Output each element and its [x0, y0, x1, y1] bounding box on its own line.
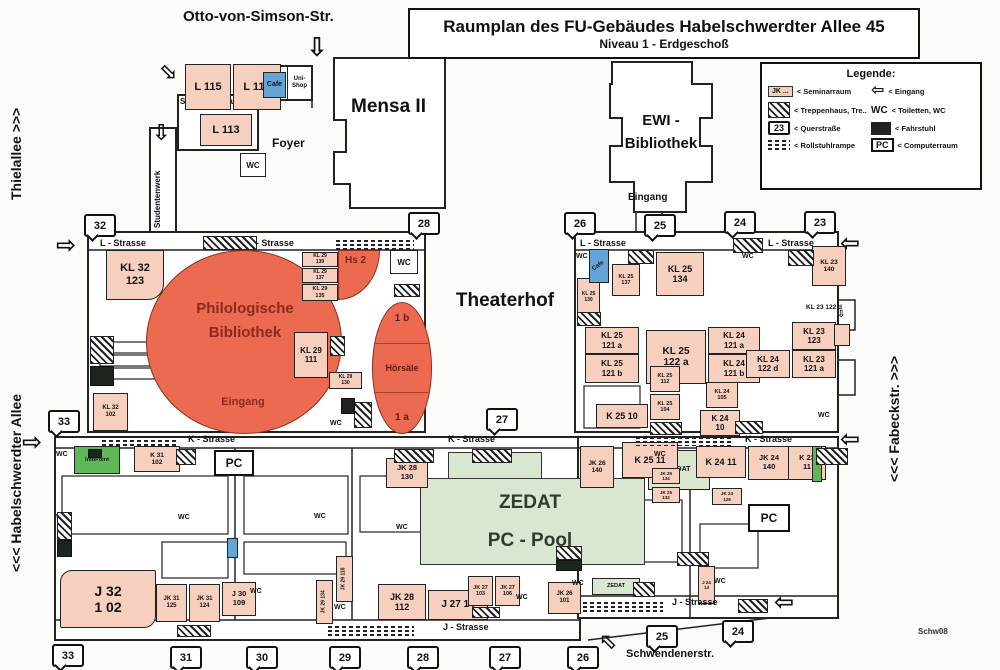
street-label-j-strasse: J - Strasse — [443, 622, 489, 632]
street-badge-24: 24 — [722, 620, 754, 643]
stairs — [57, 512, 72, 540]
stairs — [628, 250, 654, 264]
room-unlabeled — [834, 324, 850, 346]
elevator — [57, 540, 72, 557]
room-jk-26-140: JK 26140 — [580, 446, 614, 488]
wheelchair-ramp — [336, 240, 414, 251]
room-kl-23-121-a: KL 23121 a — [792, 350, 836, 378]
entrance-arrow-down: ⇩ — [306, 34, 328, 60]
room-kl-25-121-b: KL 25121 b — [585, 354, 639, 383]
street-habelschwerdter-allee: <<< Habelschwerdter Allee — [8, 394, 24, 572]
legend-ramp-label: < Rollstuhlrampe — [794, 141, 855, 150]
wc-label: WC — [334, 604, 346, 611]
stairs — [788, 250, 814, 266]
wc-label: WC — [654, 451, 666, 458]
area-theaterhof: Theaterhof — [440, 290, 570, 312]
street-schwendenerstr: Schwendenerstr. — [626, 648, 714, 660]
label-kl-23-122-d: KL 23 122 d — [806, 304, 842, 311]
entrance-arrow-right: ⇨ — [56, 234, 76, 258]
street-badge-31: 31 — [170, 646, 202, 669]
room-jk-28-112: JK 28112 — [378, 584, 426, 620]
zedat-label: ZEDAT — [455, 492, 605, 514]
hoersaal-1a-label: 1 a — [395, 412, 409, 423]
legend-stairs-label: < Treppenhaus, Tre.. — [794, 106, 867, 115]
bibliothek-eingang-label: Eingang — [178, 396, 308, 408]
hoersaal-1b-label: 1 b — [395, 313, 409, 324]
street-badge-33: 33 — [48, 410, 80, 433]
room-cafe: Cafe — [589, 249, 609, 283]
pc-room: PC — [748, 504, 790, 532]
street-badge-26: 26 — [567, 646, 599, 669]
entrance-arrow-right: ⇨ — [22, 431, 42, 455]
stairs — [556, 546, 582, 560]
seminar-room-swatch: JK ... — [768, 86, 793, 97]
street-badge-26: 26 — [564, 212, 596, 235]
street-badge-32: 32 — [84, 214, 116, 237]
room-kl-23-123: KL 23123 — [792, 322, 836, 350]
stairs — [354, 402, 372, 428]
wheelchair-ramp — [328, 626, 414, 636]
stairs — [677, 552, 709, 566]
wc-label: WC — [742, 253, 754, 260]
stairs — [472, 449, 512, 463]
wc-room: WC — [390, 250, 418, 274]
entrance-arrow-left: ⇦ — [840, 232, 860, 256]
street-badge-27: 27 — [486, 408, 518, 431]
street-badge-33: 33 — [52, 644, 84, 667]
wc-label: WC — [396, 524, 408, 531]
wc-icon: WC — [871, 105, 888, 116]
room-uni-shop: Uni-Shop — [287, 66, 312, 100]
street-fabeckstr: <<< Fabeckstr. >>> — [886, 356, 902, 482]
querstrasse-badge-icon: 23 — [768, 121, 790, 135]
entrance-arrow-left: ⇦ — [840, 428, 860, 452]
stairs — [176, 449, 196, 465]
bibliothek-line1: Philologische — [160, 300, 330, 317]
entrance-arrow-down: ⇩ — [152, 122, 170, 144]
street-thielallee: Thielallee >>> — [8, 108, 24, 200]
wheelchair-ramp — [102, 436, 176, 446]
area-ewi-bibliothek: EWI - Bibliothek — [606, 112, 716, 152]
room-k-24-10: K 2410 — [700, 410, 740, 436]
street-badge-28: 28 — [408, 212, 440, 235]
pc-room-icon: PC — [871, 138, 894, 152]
room-kl-25-112: KL 25112 — [650, 366, 680, 392]
legend-seminar-label: < Seminarraum — [797, 87, 851, 96]
street-label-j-strasse: J - Strasse — [672, 597, 718, 607]
street-label-k-strasse: K - Strasse — [188, 434, 235, 444]
room-kl-29-137: KL 29137 — [302, 268, 338, 283]
wheelchair-ramp — [636, 437, 732, 446]
wc-label: WC — [250, 588, 262, 595]
wc-label: WC — [178, 514, 190, 521]
elevator — [88, 449, 102, 458]
room-jk-27-103: JK 27103 — [468, 576, 493, 606]
room-kl-29-135: KL 29135 — [302, 284, 338, 301]
wc-room: WC — [240, 153, 266, 177]
entrance-arrow-left: ⇦ — [774, 591, 794, 615]
street-label-l-strasse: L - Strasse — [768, 238, 814, 248]
wheelchair-ramp — [583, 602, 663, 612]
stairs — [203, 236, 257, 250]
plan-note: Schw08 — [918, 627, 948, 636]
street-label-k-strasse: K - Strasse — [448, 434, 495, 444]
room-kl-24-105: KL 24105 — [706, 382, 738, 408]
street-badge-25: 25 — [646, 625, 678, 648]
stairs — [394, 449, 434, 463]
stairs — [90, 336, 114, 364]
elevator — [90, 366, 114, 386]
stairs — [577, 312, 601, 326]
room-unlabeled — [227, 538, 238, 558]
wc-label: WC — [56, 451, 68, 458]
legend-quer-label: < Querstraße — [794, 124, 840, 133]
pc-pool-label: PC - Pool — [455, 530, 605, 552]
room-kl-29-130: KL 29130 — [329, 372, 362, 389]
legend-wc-label: < Toiletten, WC — [892, 106, 946, 115]
legend-pc-label: < Computerraum — [898, 141, 958, 150]
floor-plan-page: Raumplan des FU-Gebäudes Habelschwerdter… — [0, 0, 1000, 670]
street-badge-24: 24 — [724, 211, 756, 234]
legend: Legende: JK ...< Seminarraum ⇦< Eingang … — [760, 62, 982, 190]
elevator — [341, 398, 355, 414]
room-jk-31-125: JK 31125 — [156, 584, 187, 622]
legend-title: Legende: — [762, 68, 980, 80]
room-k-25-10: K 25 10 — [596, 404, 648, 428]
room-jk-29-118: JK 29 118 — [336, 556, 353, 602]
legend-lift-label: < Fahrstuhl — [895, 124, 936, 133]
stairs — [472, 607, 500, 618]
stairs — [394, 284, 420, 297]
stairs — [177, 625, 211, 637]
wc-label: WC — [314, 513, 326, 520]
room-j-32-1-02: J 321 02 — [60, 570, 156, 628]
street-badge-30: 30 — [246, 646, 278, 669]
room-k-31-102: K 31102 — [134, 446, 180, 472]
wc-label: WC — [714, 578, 726, 585]
room-kl-24-122-d: KL 24122 d — [746, 350, 790, 378]
room-jk-25-132: JK 25132 — [652, 487, 680, 503]
wc-label: WC — [516, 594, 528, 601]
elevator — [556, 560, 582, 571]
room-kl-25-121-a: KL 25121 a — [585, 327, 639, 354]
room-kl-25-104: KL 25104 — [650, 394, 680, 420]
room-jk-27-106: JK 27106 — [495, 576, 520, 606]
room-k-24-11: K 24 11 — [696, 446, 746, 478]
pc-room: PC — [214, 450, 254, 476]
room-l-115: L 115 — [185, 64, 231, 110]
stairs — [330, 336, 345, 356]
room-jk-25-134: JK 25134 — [652, 468, 680, 484]
stairs — [650, 422, 682, 435]
wc-label: WC — [330, 420, 342, 427]
room-l-113: L 113 — [200, 114, 252, 146]
room-kl-25-134: KL 25134 — [656, 252, 704, 296]
street-badge-23: 23 — [804, 211, 836, 234]
area-mensa: Mensa II — [332, 96, 445, 118]
hoersaal-hs2: Hs 2 — [338, 250, 380, 300]
hoersaele-label: Hörsäle — [385, 363, 418, 373]
ramp-icon — [768, 140, 790, 151]
wc-label: WC — [572, 580, 584, 587]
room-jk-24-129: JK 24129 — [712, 488, 742, 505]
area-foyer: Foyer — [272, 136, 305, 150]
ewi-eingang-label: Eingang — [628, 192, 667, 203]
street-label-l-strasse: L - Strasse — [580, 238, 626, 248]
room-kl-32-123: KL 32123 — [106, 250, 164, 300]
room-jk-29-134: JK 29 134 — [316, 580, 333, 624]
street-badge-28: 28 — [407, 646, 439, 669]
room-kl-32-102: KL 32102 — [93, 393, 128, 431]
street-label-k-strasse: K - Strasse — [745, 434, 792, 444]
room-jk-31-124: JK 31124 — [189, 584, 220, 622]
room-kl-29-111: KL 29111 — [294, 332, 328, 378]
elevator-icon — [871, 122, 891, 135]
room-cafe: Cafe — [263, 72, 286, 98]
stairs — [733, 238, 763, 253]
plan-title: Raumplan des FU-Gebäudes Habelschwerdter… — [408, 8, 920, 59]
entrance-arrow-icon: ⇦ — [871, 83, 884, 99]
hoersaele-1a-1b-building: 1 b Hörsäle 1 a — [372, 302, 432, 434]
ewi-line2: Bibliothek — [606, 135, 716, 152]
ewi-line1: EWI - — [606, 112, 716, 129]
plan-title-line1: Raumplan des FU-Gebäudes Habelschwerdter… — [410, 17, 918, 37]
plan-title-line2: Niveau 1 - Erdgeschoß — [410, 37, 918, 51]
street-otto-von-simson: Otto-von-Simson-Str. — [183, 8, 334, 25]
street-label-l-strasse: L - Strasse — [100, 238, 146, 248]
room-kl-25-137: KL 25137 — [612, 264, 640, 296]
entrance-arrow-down: ⇩ — [837, 310, 845, 320]
room-kl-29-139: KL 29139 — [302, 252, 338, 267]
room-jk-24-140: JK 24140 — [748, 446, 790, 480]
stairs — [738, 599, 768, 613]
street-badge-27: 27 — [489, 646, 521, 669]
stairs — [735, 421, 763, 434]
area-studentenwerk: Studentenwerk — [153, 171, 162, 228]
stairs — [633, 582, 655, 597]
legend-entrance-label: < Eingang — [888, 87, 924, 96]
wc-label: WC — [576, 253, 588, 260]
entrance-arrow-down: ⇩ — [155, 59, 184, 88]
street-badge-25: 25 — [644, 214, 676, 237]
hs2-label: Hs 2 — [345, 255, 366, 266]
wc-label: WC — [818, 412, 830, 419]
street-badge-29: 29 — [329, 646, 361, 669]
stairs-icon — [768, 102, 790, 118]
